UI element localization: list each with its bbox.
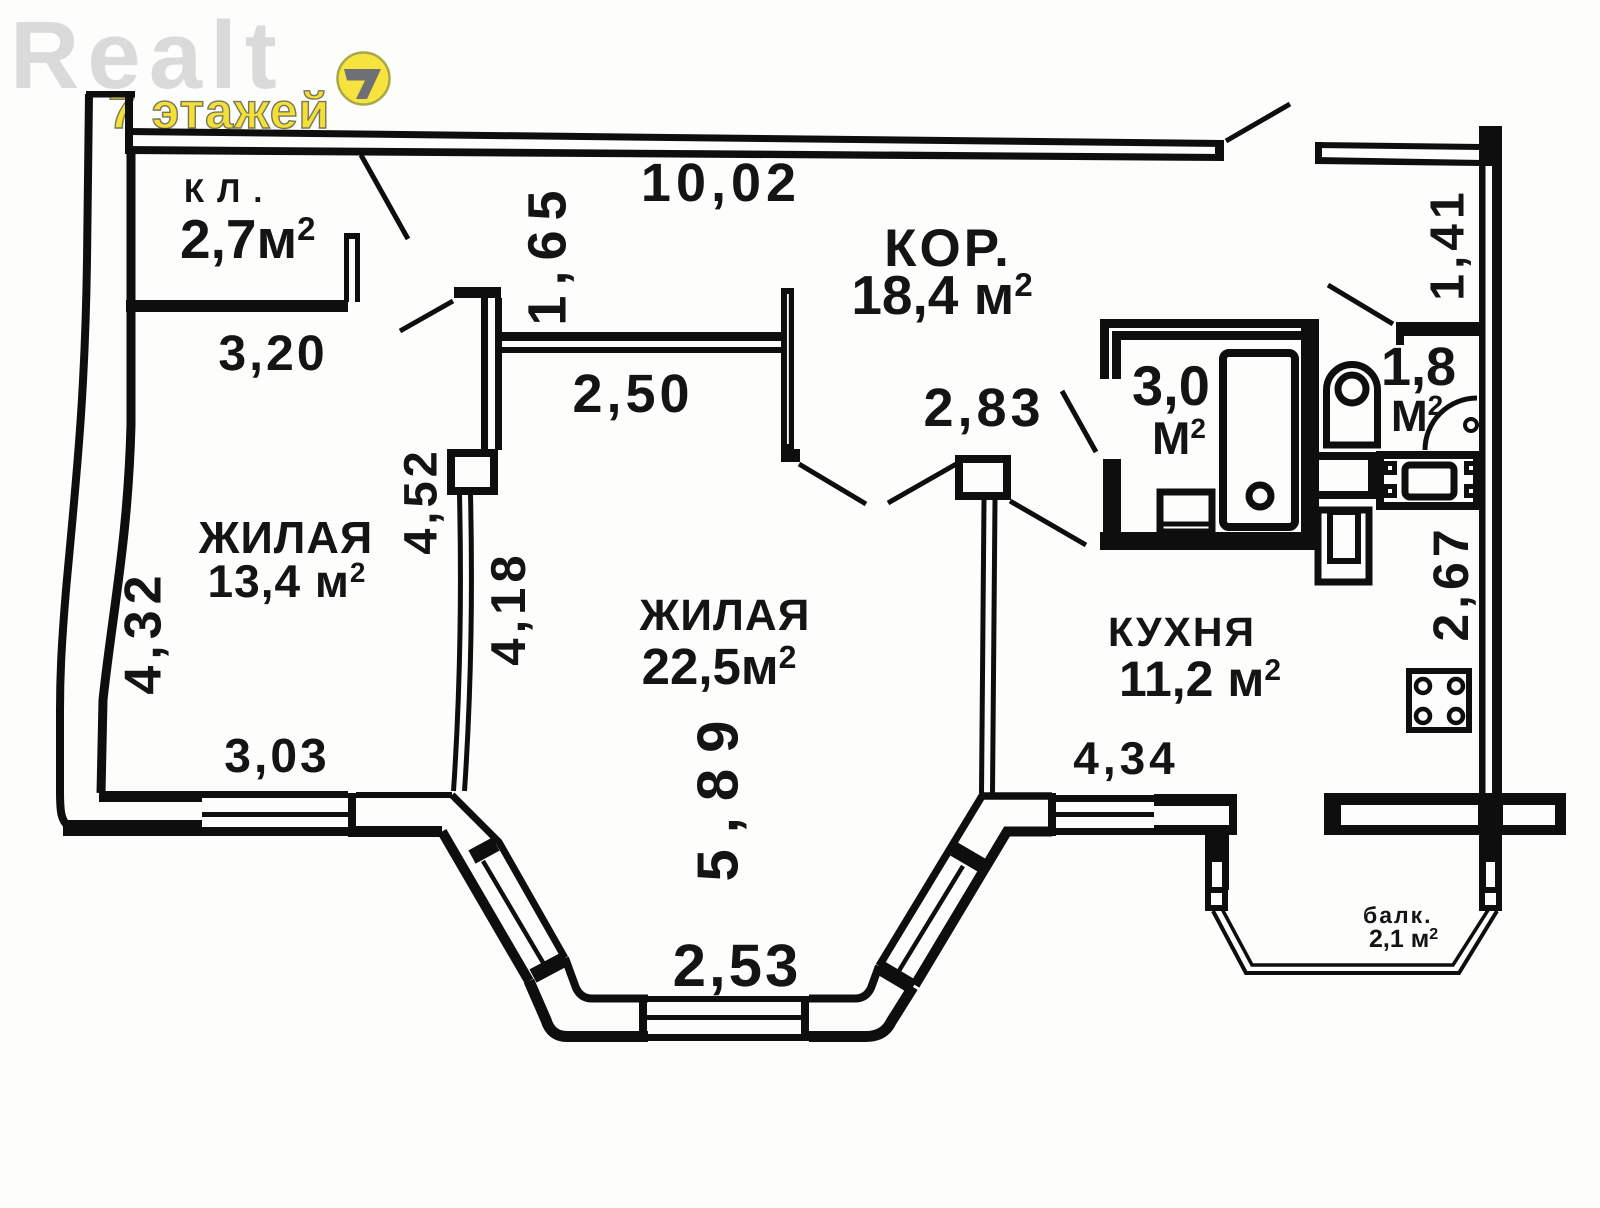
svg-text:4,34: 4,34 — [1073, 732, 1179, 784]
svg-text:2,83: 2,83 — [923, 378, 1044, 438]
svg-text:2,7м2: 2,7м2 — [180, 208, 316, 270]
svg-text:10,02: 10,02 — [641, 153, 801, 213]
svg-text:2,53: 2,53 — [673, 932, 802, 999]
svg-text:1,41: 1,41 — [1422, 187, 1475, 300]
svg-text:1,65: 1,65 — [517, 180, 577, 325]
svg-text:2,1 м2: 2,1 м2 — [1369, 925, 1438, 953]
svg-text:3,03: 3,03 — [224, 730, 329, 783]
svg-text:11,2 м2: 11,2 м2 — [1119, 651, 1281, 707]
svg-text:22,5м2: 22,5м2 — [642, 638, 797, 695]
svg-text:4,32: 4,32 — [115, 569, 173, 694]
svg-text:ЖИЛАЯ: ЖИЛАЯ — [639, 591, 811, 640]
svg-text:1,8: 1,8 — [1381, 337, 1456, 397]
svg-text:3,20: 3,20 — [218, 325, 327, 381]
svg-text:3,0: 3,0 — [1132, 354, 1210, 417]
svg-text:4,52: 4,52 — [393, 447, 446, 554]
svg-text:18,4 м2: 18,4 м2 — [851, 264, 1032, 326]
svg-text:2,50: 2,50 — [572, 364, 693, 424]
svg-text:КЛ.: КЛ. — [184, 172, 275, 209]
svg-text:КУХНЯ: КУХНЯ — [1108, 609, 1256, 655]
svg-text:13,4 м2: 13,4 м2 — [208, 555, 367, 607]
svg-text:2,67: 2,67 — [1423, 524, 1479, 641]
svg-text:5,89: 5,89 — [685, 705, 750, 882]
svg-text:4,18: 4,18 — [482, 550, 536, 665]
